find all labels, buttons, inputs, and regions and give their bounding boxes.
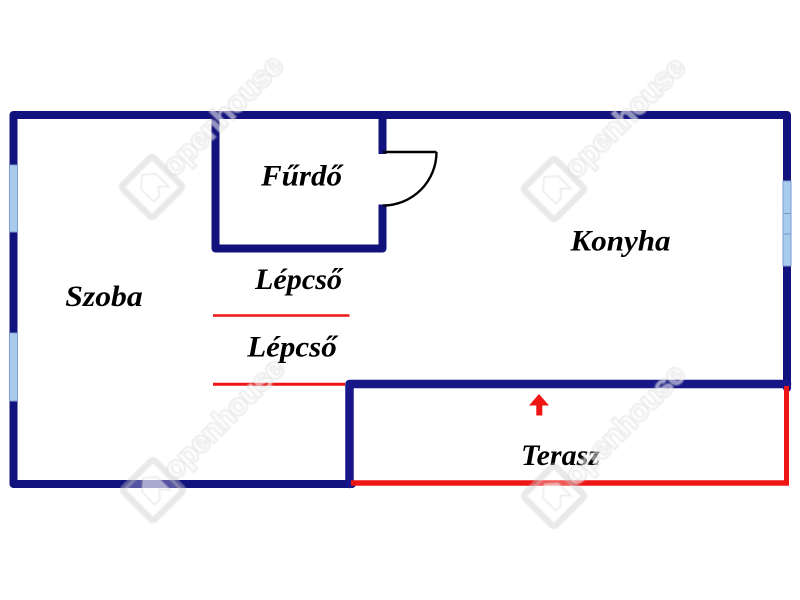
svg-text:Lépcső: Lépcső [254,263,344,296]
svg-text:Szoba: Szoba [65,280,143,313]
svg-text:Konyha: Konyha [569,225,670,258]
svg-text:Fűrdő: Fűrdő [260,160,344,193]
